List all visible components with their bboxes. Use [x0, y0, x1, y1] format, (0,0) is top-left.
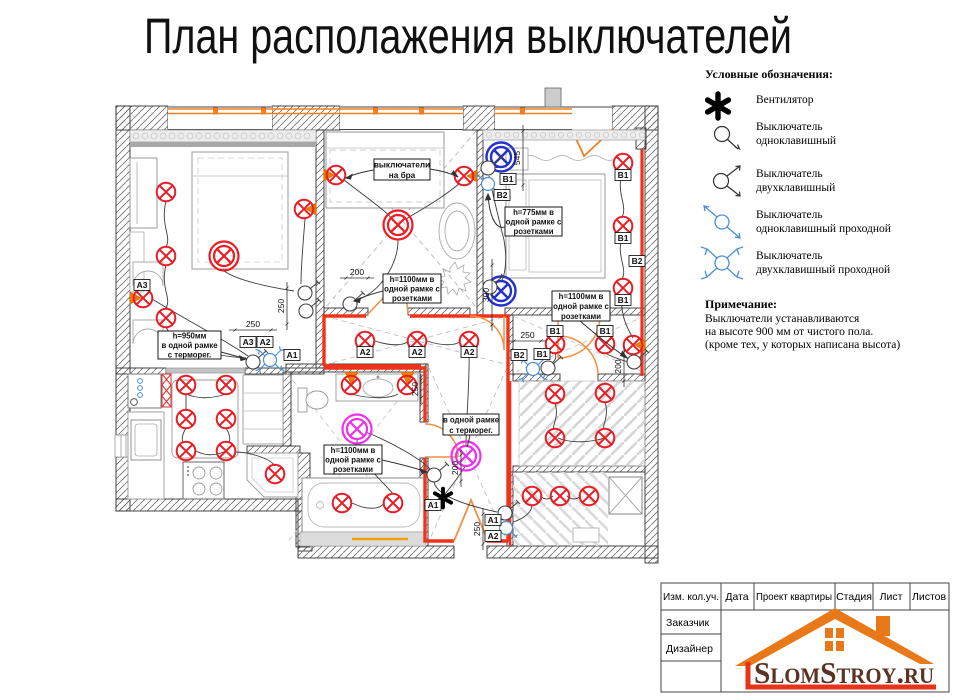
svg-text:розетками: розетками — [561, 312, 601, 321]
svg-text:A1: A1 — [287, 350, 298, 360]
svg-text:B1: B1 — [618, 233, 629, 243]
svg-text:(кроме тех, у которых написана: (кроме тех, у которых написана высота) — [705, 339, 900, 351]
svg-text:в одной рамке: в одной рамке — [161, 341, 218, 350]
svg-text:B2: B2 — [497, 190, 508, 200]
svg-text:B1: B1 — [600, 326, 611, 336]
svg-text:250: 250 — [246, 319, 260, 329]
svg-text:розетками: розетками — [333, 465, 373, 474]
svg-text:Условные обозначения:: Условные обозначения: — [705, 67, 833, 81]
svg-text:одной рамке с: одной рамке с — [325, 456, 381, 465]
svg-text:h=1100мм в: h=1100мм в — [559, 292, 604, 301]
svg-text:SlomStroy.ru: SlomStroy.ru — [754, 655, 934, 690]
svg-text:Выключатели устанавливаются: Выключатели устанавливаются — [705, 313, 860, 325]
svg-text:двухклавишный: двухклавишный — [756, 182, 835, 194]
svg-text:Выключатель: Выключатель — [756, 209, 823, 221]
svg-text:B2: B2 — [632, 256, 643, 266]
svg-text:h=1100мм в: h=1100мм в — [331, 446, 376, 455]
svg-text:200: 200 — [350, 267, 364, 277]
svg-text:одноклавишный: одноклавишный — [756, 135, 836, 147]
svg-text:B2: B2 — [514, 350, 525, 360]
svg-text:250: 250 — [276, 299, 286, 313]
svg-text:с терморег.: с терморег. — [449, 426, 492, 435]
svg-text:Листов: Листов — [912, 591, 947, 603]
svg-text:300: 300 — [481, 288, 491, 302]
svg-text:A2: A2 — [488, 531, 499, 541]
svg-text:A1: A1 — [488, 515, 499, 525]
svg-text:200: 200 — [613, 359, 623, 373]
svg-text:B1: B1 — [550, 326, 561, 336]
svg-text:B1: B1 — [618, 295, 629, 305]
svg-text:200: 200 — [450, 461, 460, 475]
svg-text:A3: A3 — [243, 337, 254, 347]
svg-text:A1: A1 — [428, 500, 439, 510]
svg-text:розетками: розетками — [513, 227, 553, 236]
svg-text:Заказчик: Заказчик — [666, 617, 710, 629]
svg-text:Выключатель: Выключатель — [756, 250, 823, 262]
svg-text:одной рамке с: одной рамке с — [506, 218, 562, 227]
svg-text:A2: A2 — [260, 337, 271, 347]
svg-text:на бра: на бра — [389, 170, 416, 180]
svg-text:A2: A2 — [360, 347, 371, 357]
svg-text:Лист: Лист — [880, 591, 903, 603]
svg-text:Дата: Дата — [725, 591, 748, 603]
svg-text:A2: A2 — [412, 347, 423, 357]
svg-text:Изм. кол.уч.: Изм. кол.уч. — [663, 591, 719, 603]
svg-text:Выключатель: Выключатель — [756, 168, 823, 180]
svg-text:Вентилятор: Вентилятор — [756, 94, 814, 106]
svg-text:B1: B1 — [537, 349, 548, 359]
svg-text:Проект квартиры: Проект квартиры — [756, 591, 832, 603]
svg-text:выключатели: выключатели — [374, 160, 430, 169]
svg-text:545: 545 — [512, 151, 522, 165]
svg-text:B1: B1 — [503, 174, 514, 184]
svg-text:Стадия: Стадия — [836, 591, 872, 603]
svg-text:250: 250 — [410, 382, 420, 396]
svg-text:на высоте 900 мм от чистого по: на высоте 900 мм от чистого пола. — [705, 326, 873, 338]
svg-text:Примечание:: Примечание: — [705, 297, 777, 311]
svg-text:одной рамке с: одной рамке с — [553, 302, 609, 311]
svg-text:h=1100мм в: h=1100мм в — [390, 275, 435, 284]
svg-text:A2: A2 — [464, 347, 475, 357]
svg-text:A3: A3 — [137, 280, 148, 290]
svg-text:Дизайнер: Дизайнер — [666, 643, 713, 655]
svg-text:Выключатель: Выключатель — [756, 121, 823, 133]
svg-text:с терморег.: с терморег. — [168, 350, 211, 359]
svg-text:двухклавишный проходной: двухклавишный проходной — [756, 264, 890, 276]
svg-text:250: 250 — [520, 330, 534, 340]
svg-text:розетками: розетками — [392, 294, 432, 303]
svg-text:250: 250 — [472, 522, 482, 536]
svg-text:одноклавишный проходной: одноклавишный проходной — [756, 223, 891, 235]
svg-text:в одной рамке: в одной рамке — [443, 415, 500, 424]
svg-text:h=950мм: h=950мм — [173, 332, 207, 341]
svg-text:h=775мм в: h=775мм в — [513, 208, 554, 217]
svg-text:B1: B1 — [618, 170, 629, 180]
svg-text:одной рамке с: одной рамке с — [384, 285, 440, 294]
svg-text:План располажения выключателей: План располажения выключателей — [144, 8, 792, 64]
